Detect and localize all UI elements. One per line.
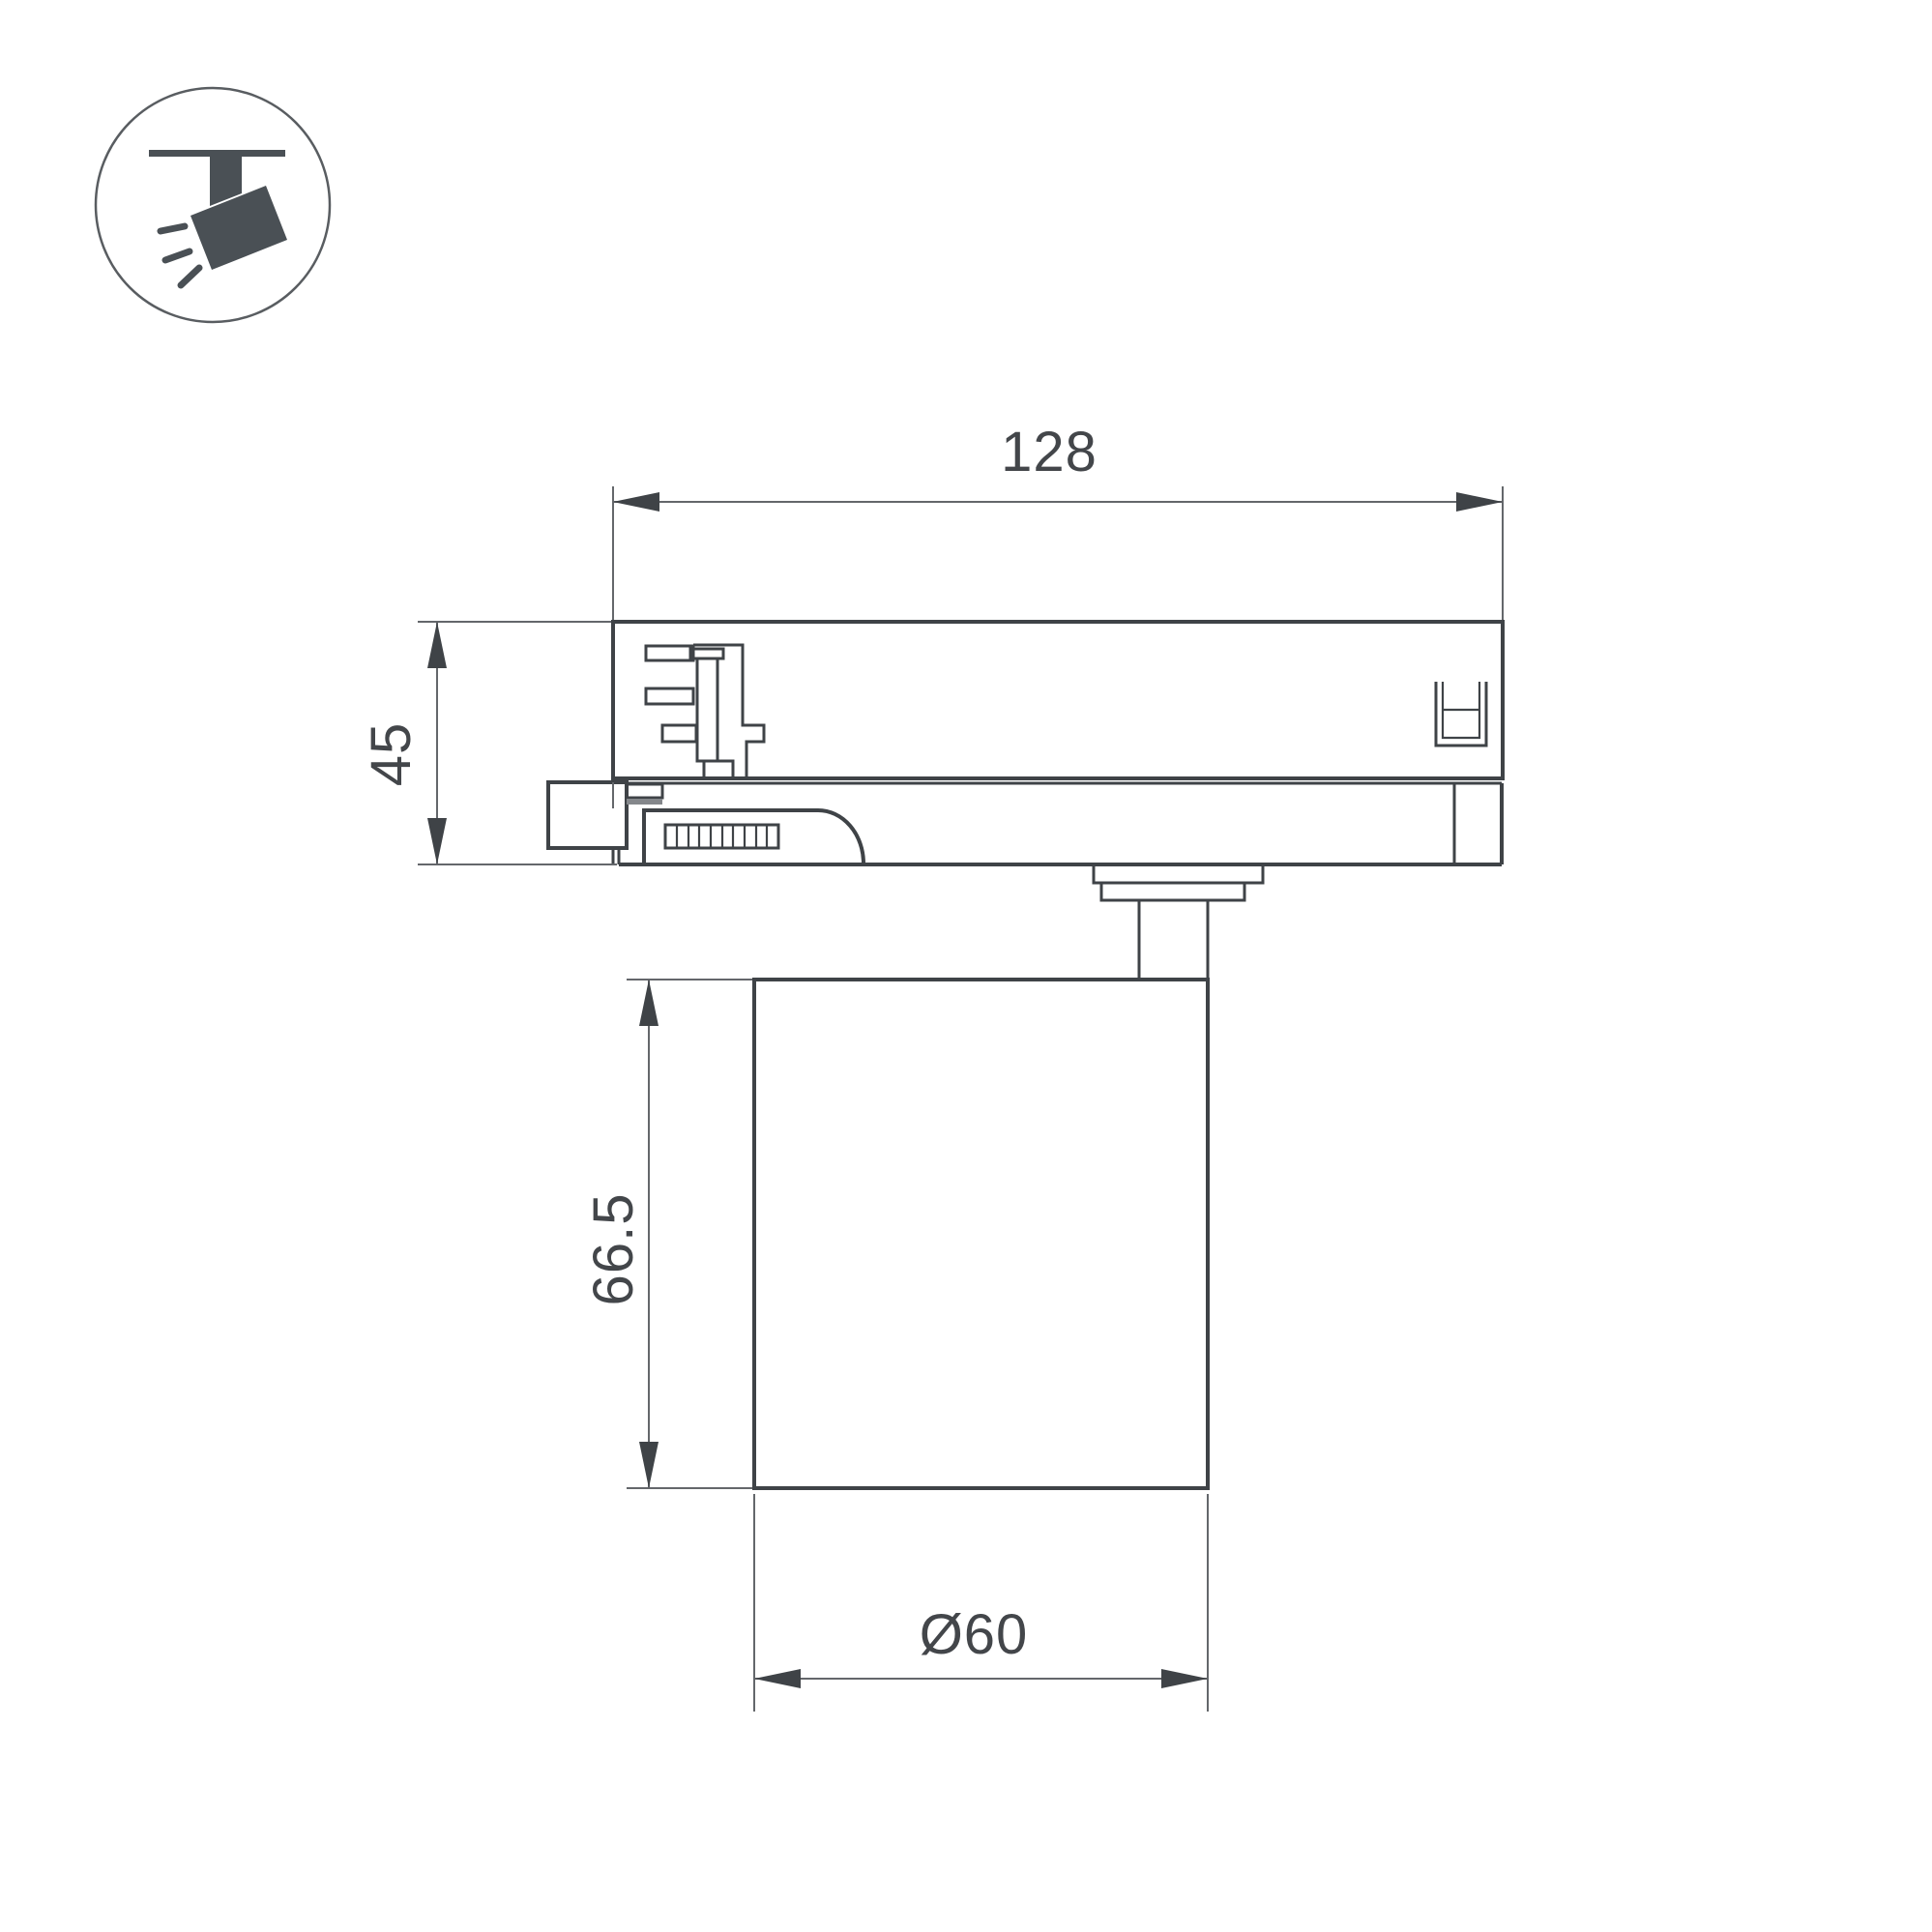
dimension-label-body-diameter: Ø60	[920, 1603, 1029, 1666]
contact-carrier	[693, 645, 764, 778]
dimension-track-width: 128	[613, 421, 1503, 620]
technical-drawing-canvas: 128 45 66.5 Ø60	[0, 0, 1932, 1932]
pivot-joint	[1094, 864, 1263, 980]
latch-box	[548, 782, 627, 848]
latch-tab	[627, 784, 662, 798]
dimension-body-height: 66.5	[582, 980, 752, 1488]
dimension-label-body-height: 66.5	[582, 1193, 645, 1306]
adjustment-dial	[665, 825, 778, 848]
icon-circle	[96, 88, 330, 322]
contact-shaft	[697, 659, 717, 761]
lamp-body-outline	[754, 980, 1208, 1488]
arrowhead-bottom	[427, 818, 447, 864]
latch-spring-bar	[627, 799, 662, 805]
arrowhead-top	[639, 980, 659, 1026]
contact-assembly	[646, 645, 764, 778]
arrowhead-bottom	[639, 1442, 659, 1488]
adapter-housing	[548, 782, 1502, 864]
arrowhead-right	[1456, 492, 1503, 512]
arrowhead-left	[613, 492, 659, 512]
contact-prong-top	[646, 646, 693, 660]
dimension-label-adapter-height: 45	[360, 722, 423, 787]
page: 128 45 66.5 Ø60	[0, 0, 1932, 1932]
pivot-flange-lower	[1101, 883, 1244, 900]
arrowhead-top	[427, 622, 447, 668]
dimension-label-track-width: 128	[1001, 421, 1098, 483]
track-adapter-view	[548, 622, 1503, 864]
arrowhead-left	[754, 1669, 801, 1688]
ground-clip-bracket	[1436, 682, 1486, 746]
light-ray-icon	[161, 226, 185, 231]
dimension-adapter-height: 45	[360, 622, 617, 864]
track-rail-icon	[149, 150, 285, 157]
contact-prong-bottom	[662, 725, 696, 742]
contact-prong-middle	[646, 688, 693, 704]
arrowhead-right	[1161, 1669, 1208, 1688]
contact-foot	[704, 761, 733, 778]
fixture-type-icon	[96, 88, 330, 322]
dimension-body-diameter: Ø60	[754, 1494, 1208, 1712]
pivot-stem	[1139, 900, 1208, 980]
pivot-flange-upper	[1094, 864, 1263, 883]
